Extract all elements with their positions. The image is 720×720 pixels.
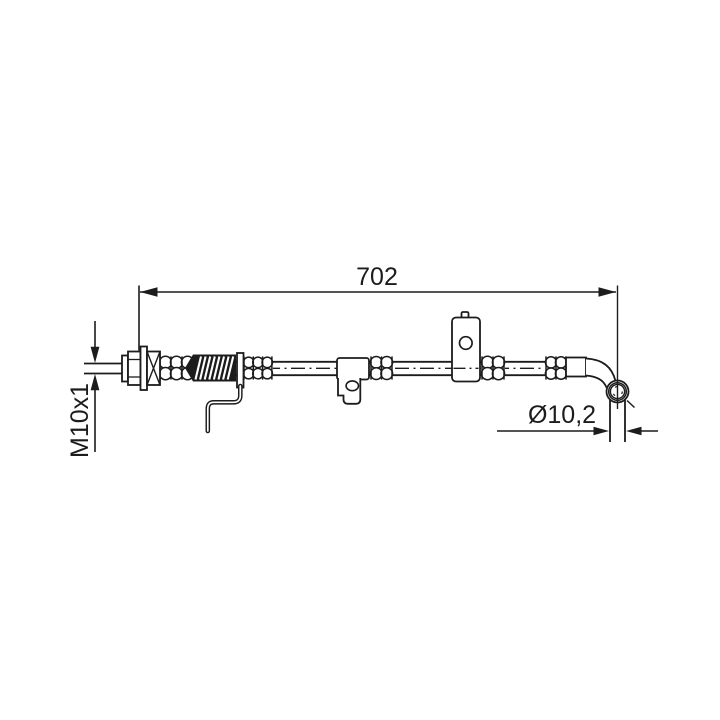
left-end-fitting: [122, 347, 160, 391]
mounting-bracket-right: [452, 312, 480, 382]
male-fitting-tube: [84, 364, 124, 374]
bracket-slot-hole: [346, 381, 358, 391]
end-crimp-sleeve: [566, 358, 586, 377]
bracket-hole: [460, 337, 473, 350]
hex-nut: [128, 352, 141, 386]
retaining-clip-wire-inner: [208, 386, 241, 431]
thread-dimension-label: M10x1: [66, 383, 94, 458]
seat-flange: [141, 347, 148, 391]
banjo-edge-tick: [627, 401, 635, 408]
spring-guard: [185, 355, 236, 382]
arrowhead-right: [599, 287, 617, 296]
collar: [122, 356, 128, 382]
clip-flange: [237, 353, 244, 388]
retaining-clip-wire: [208, 386, 241, 431]
length-dimension-label: 702: [356, 263, 398, 291]
dimension-length: [139, 286, 616, 351]
arrowhead-left: [140, 287, 158, 296]
diameter-dimension-label: Ø10,2: [528, 401, 596, 429]
mounting-bracket-middle: [337, 358, 369, 404]
arrowhead-down: [91, 347, 100, 363]
arrowhead-left-in: [626, 427, 642, 436]
drawing-canvas: 702 M10x1: [0, 0, 720, 720]
brake-hose-technical-drawing: 702 M10x1: [0, 0, 720, 720]
